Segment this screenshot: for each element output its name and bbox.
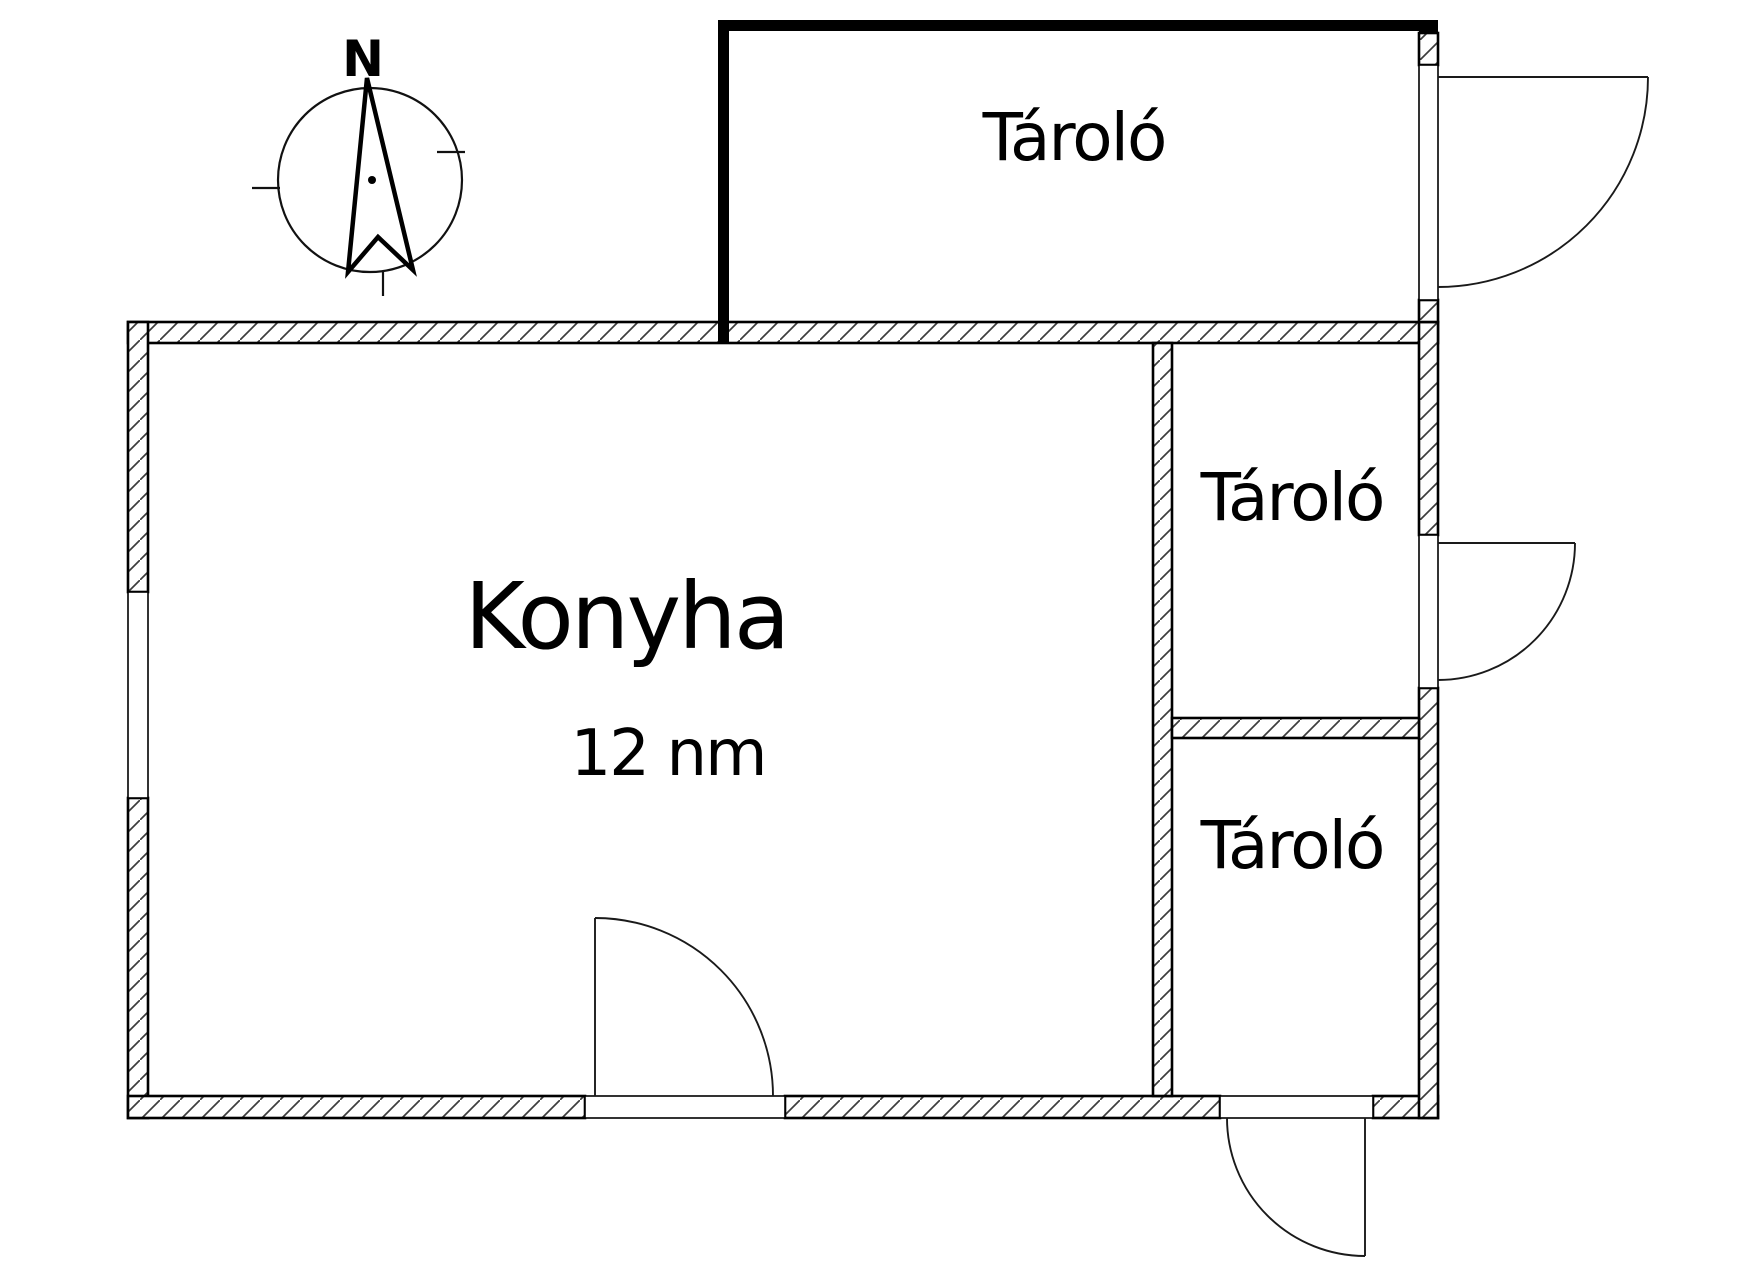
wall-left-lower <box>128 798 148 1118</box>
door-arc-storage-bottom <box>1227 1118 1365 1256</box>
window-left-wall <box>128 592 148 798</box>
door-storage-middle <box>1438 543 1575 680</box>
wall-middle-vertical <box>1153 343 1172 1096</box>
wall-annex-right-upper-block <box>1419 33 1438 65</box>
compass: N <box>252 30 465 296</box>
wall-right-lower <box>1419 688 1438 1118</box>
door-storage-top <box>1438 77 1648 287</box>
door-opening-storage-middle <box>1419 535 1438 688</box>
wall-left-upper <box>128 322 148 592</box>
door-arc-storage-middle <box>1438 543 1575 680</box>
wall-bottom-left-segment <box>128 1096 585 1118</box>
wall-annex-right-lower-block <box>1419 300 1438 322</box>
room-label-storage-bottom: Tároló <box>1200 807 1384 884</box>
room-area-kitchen: 12 nm <box>570 717 765 791</box>
floor-plan-canvas: N Tároló Tároló Tároló Konyha 12 nm <box>0 0 1741 1280</box>
compass-north-label: N <box>342 30 384 88</box>
wall-right-upper <box>1419 322 1438 535</box>
wall-bottom-middle-segment <box>785 1096 1220 1118</box>
compass-center-dot <box>368 176 376 184</box>
door-opening-storage-bottom <box>1220 1096 1373 1118</box>
room-label-kitchen: Konyha <box>465 563 788 670</box>
door-arc-kitchen <box>595 918 773 1096</box>
compass-needle <box>348 78 413 272</box>
door-opening-storage-top <box>1419 65 1438 300</box>
door-arc-storage-top <box>1438 77 1648 287</box>
room-label-storage-top: Tároló <box>982 99 1166 176</box>
door-storage-bottom <box>1227 1118 1365 1256</box>
annex-wall-top <box>718 20 1438 31</box>
door-kitchen <box>595 918 773 1096</box>
room-label-storage-middle: Tároló <box>1200 459 1384 536</box>
door-opening-kitchen <box>585 1096 785 1118</box>
annex-wall-left <box>718 20 729 343</box>
wall-top <box>128 322 1438 343</box>
wall-divider-storage-rooms <box>1172 718 1419 738</box>
floor-plan: N Tároló Tároló Tároló Konyha 12 nm <box>0 0 1741 1280</box>
annex-wall-right-cap <box>1419 20 1438 33</box>
